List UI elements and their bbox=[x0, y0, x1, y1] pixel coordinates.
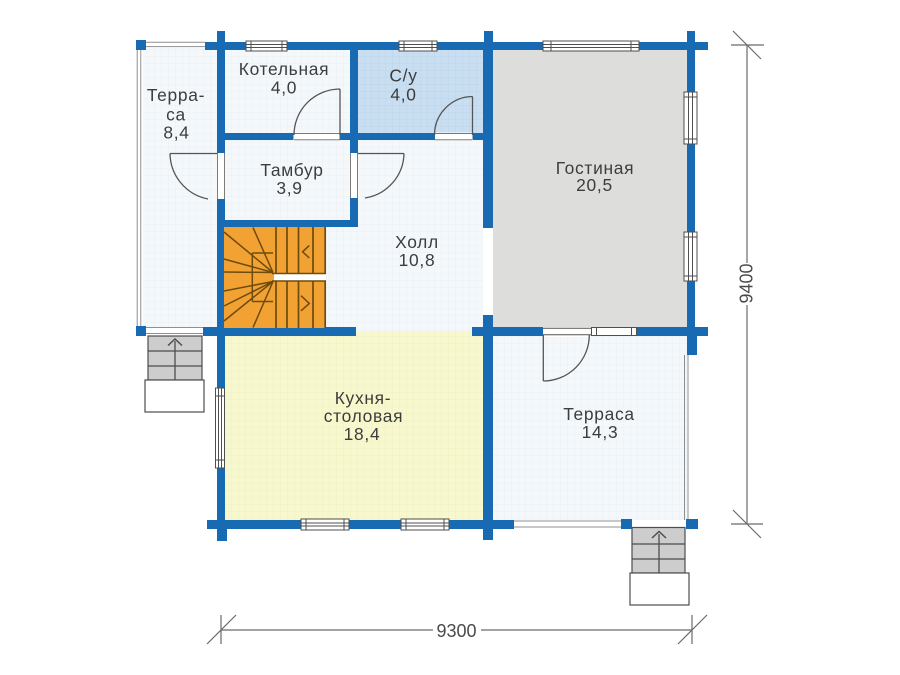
svg-text:Котельная: Котельная bbox=[239, 59, 329, 79]
svg-text:Терра-: Терра- bbox=[147, 85, 205, 105]
svg-text:Кухня-: Кухня- bbox=[335, 388, 392, 408]
svg-text:14,3: 14,3 bbox=[582, 422, 619, 442]
svg-text:3,9: 3,9 bbox=[276, 178, 302, 198]
svg-text:Тамбур: Тамбур bbox=[260, 160, 323, 180]
svg-text:са: са bbox=[166, 105, 186, 125]
svg-text:Терраса: Терраса bbox=[563, 404, 635, 424]
svg-text:18,4: 18,4 bbox=[344, 424, 381, 444]
svg-text:4,0: 4,0 bbox=[390, 85, 416, 105]
svg-text:8,4: 8,4 bbox=[163, 123, 189, 143]
svg-text:столовая: столовая bbox=[324, 406, 404, 426]
svg-text:9300: 9300 bbox=[436, 621, 476, 641]
svg-text:4,0: 4,0 bbox=[271, 78, 297, 98]
svg-text:9400: 9400 bbox=[737, 263, 757, 303]
svg-text:10,8: 10,8 bbox=[399, 250, 436, 270]
svg-text:Холл: Холл bbox=[395, 232, 439, 252]
svg-text:С/у: С/у bbox=[389, 66, 417, 86]
svg-text:20,5: 20,5 bbox=[576, 175, 613, 195]
